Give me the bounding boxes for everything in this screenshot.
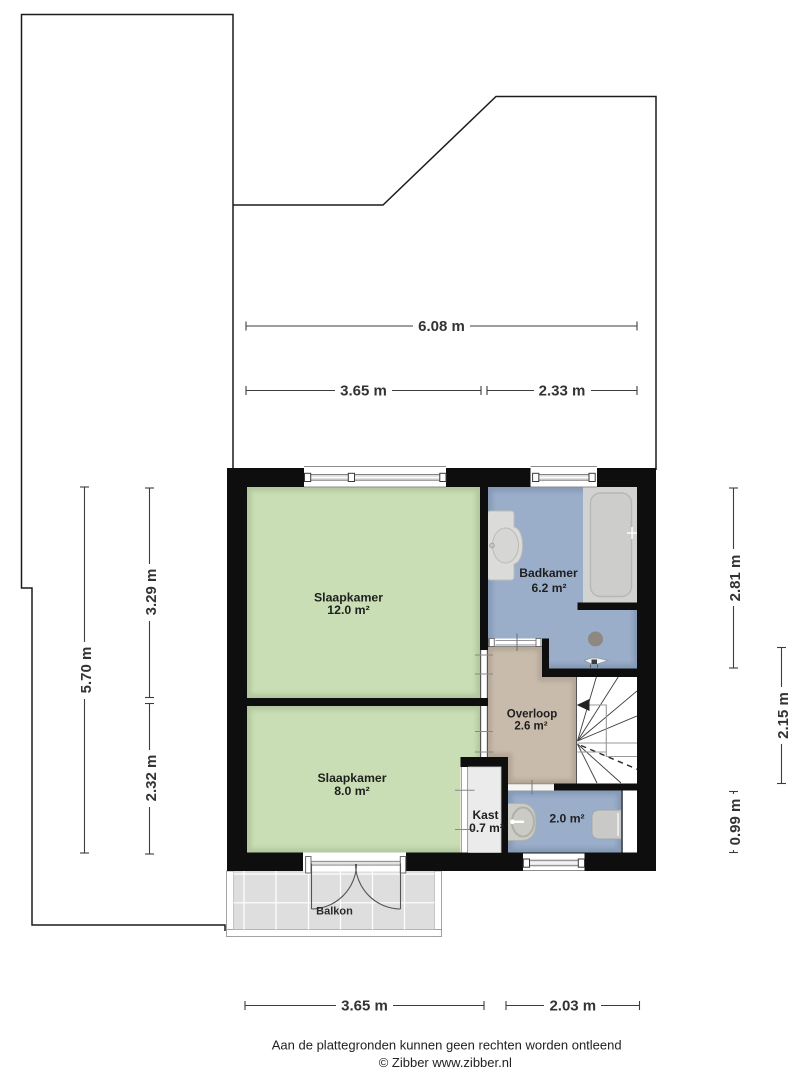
svg-text:2.81 m: 2.81 m — [727, 555, 744, 602]
svg-text:Slaapkamer: Slaapkamer — [317, 771, 386, 785]
svg-text:0.7 m²: 0.7 m² — [469, 821, 504, 835]
svg-text:Aan de plattegronden kunnen ge: Aan de plattegronden kunnen geen rechten… — [272, 1038, 622, 1053]
svg-text:© Zibber www.zibber.nl: © Zibber www.zibber.nl — [379, 1055, 512, 1070]
svg-text:3.29 m: 3.29 m — [143, 569, 160, 616]
svg-text:6.2 m²: 6.2 m² — [532, 581, 567, 595]
svg-text:Balkon: Balkon — [316, 906, 353, 918]
svg-text:8.0 m²: 8.0 m² — [334, 784, 370, 798]
svg-text:Kast: Kast — [472, 808, 498, 822]
svg-text:2.33 m: 2.33 m — [539, 383, 586, 400]
svg-text:6.08 m: 6.08 m — [418, 318, 465, 335]
svg-text:Badkamer: Badkamer — [519, 566, 578, 580]
svg-text:2.03 m: 2.03 m — [549, 998, 596, 1015]
svg-text:5.70 m: 5.70 m — [78, 647, 95, 694]
svg-text:3.65 m: 3.65 m — [341, 998, 388, 1015]
svg-text:2.6 m²: 2.6 m² — [514, 720, 547, 732]
svg-text:0.99 m: 0.99 m — [727, 799, 744, 846]
svg-text:2.0 m²: 2.0 m² — [549, 812, 584, 826]
svg-text:12.0 m²: 12.0 m² — [327, 603, 369, 617]
svg-text:3.65 m: 3.65 m — [340, 383, 387, 400]
svg-text:2.32 m: 2.32 m — [143, 755, 160, 802]
svg-text:Overloop: Overloop — [507, 709, 557, 721]
svg-text:2.15 m: 2.15 m — [775, 692, 792, 739]
